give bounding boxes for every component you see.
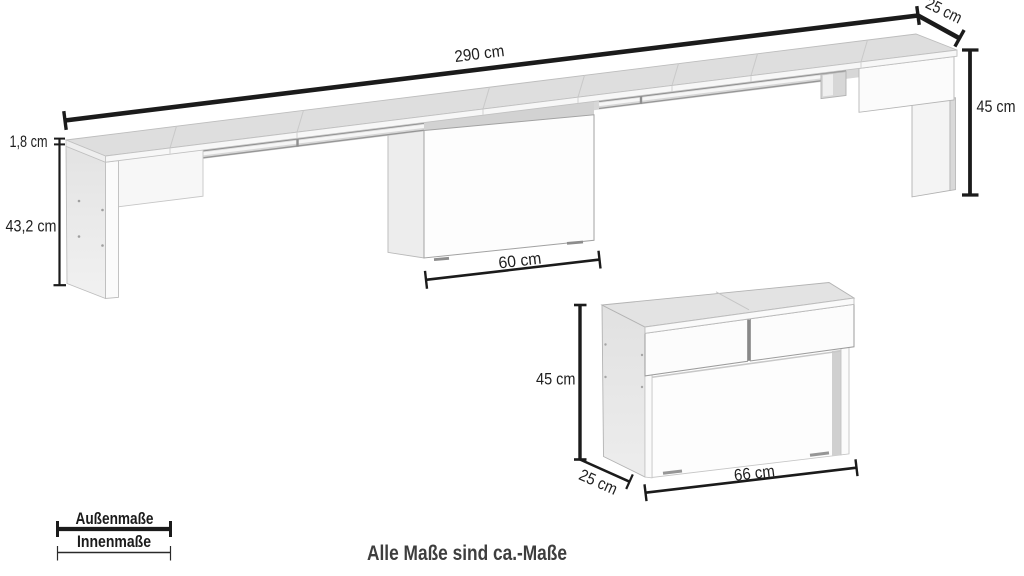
svg-text:45 cm: 45 cm [977,98,1016,116]
svg-text:Innenmaße: Innenmaße [77,533,151,551]
svg-text:Alle Maße sind ca.-Maße: Alle Maße sind ca.-Maße [367,542,567,565]
svg-text:1,8 cm: 1,8 cm [10,133,48,151]
svg-text:43,2 cm: 43,2 cm [6,217,57,235]
svg-text:Außenmaße: Außenmaße [76,510,154,528]
svg-text:45 cm: 45 cm [536,370,576,388]
